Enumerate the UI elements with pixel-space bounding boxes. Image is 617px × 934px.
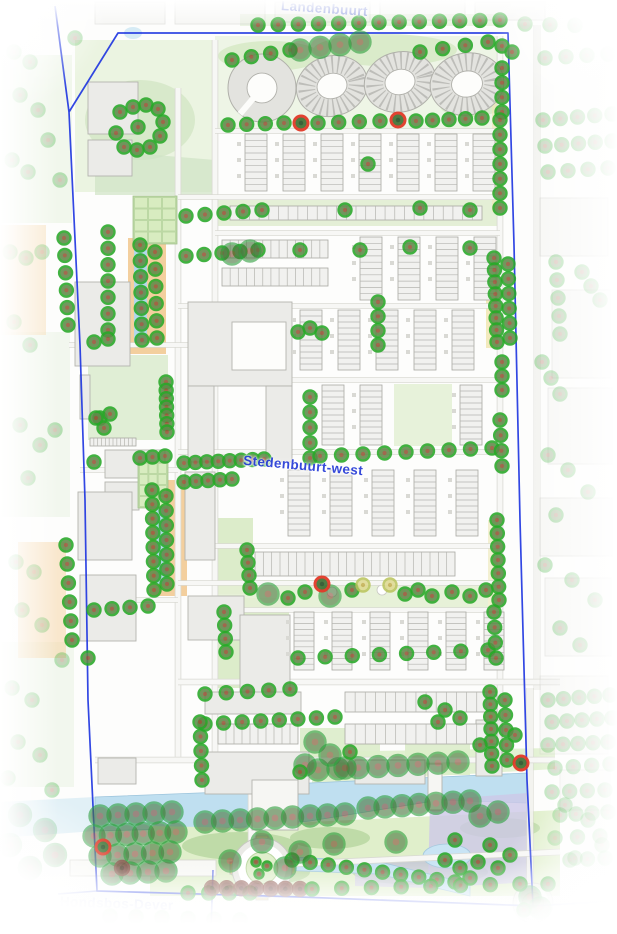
tree-marker[interactable] (494, 114, 507, 127)
tree-marker[interactable] (554, 328, 567, 341)
tree-marker[interactable] (310, 712, 323, 725)
tree-marker[interactable] (550, 509, 563, 522)
tree-marker[interactable] (544, 18, 557, 31)
tree-marker[interactable] (502, 287, 515, 300)
tree-marker[interactable] (492, 554, 505, 567)
tree-marker[interactable] (304, 391, 317, 404)
tree-marker[interactable] (324, 834, 345, 855)
tree-marker[interactable] (581, 853, 594, 866)
tree-marker[interactable] (591, 713, 604, 726)
tree-marker[interactable] (332, 17, 345, 30)
tree-marker[interactable] (552, 292, 565, 305)
tree-marker[interactable] (499, 709, 512, 722)
tree-marker[interactable] (49, 424, 62, 437)
tree-marker[interactable] (136, 334, 149, 347)
tree-marker[interactable] (275, 858, 296, 879)
tree-marker[interactable] (182, 912, 195, 925)
tree-marker[interactable] (28, 566, 41, 579)
tree-marker[interactable] (572, 737, 585, 750)
tree-marker[interactable] (234, 881, 248, 895)
tree-marker[interactable] (344, 746, 357, 759)
tree-marker[interactable] (504, 332, 517, 345)
tree-marker[interactable] (492, 580, 505, 593)
tree-marker[interactable] (589, 136, 602, 149)
tree-marker[interactable] (373, 16, 386, 29)
tree-marker[interactable] (208, 913, 221, 926)
tree-marker[interactable] (310, 37, 331, 58)
tree-marker[interactable] (26, 694, 39, 707)
tree-marker[interactable] (485, 723, 498, 736)
tree-marker-selected[interactable] (96, 840, 110, 854)
tree-marker[interactable] (149, 246, 162, 259)
tree-marker[interactable] (195, 745, 208, 758)
tree-marker[interactable] (503, 317, 516, 330)
tree-marker[interactable] (454, 712, 467, 725)
tree-marker[interactable] (152, 103, 165, 116)
tree-marker[interactable] (386, 832, 407, 853)
tree-marker[interactable] (34, 749, 47, 762)
tree-marker[interactable] (572, 137, 585, 150)
tree-marker[interactable] (24, 339, 37, 352)
tree-marker[interactable] (604, 689, 617, 702)
tree-marker[interactable] (234, 914, 247, 927)
tree-marker[interactable] (539, 140, 552, 153)
tree-marker[interactable] (503, 302, 516, 315)
tree-marker[interactable] (146, 484, 159, 497)
tree-marker[interactable] (151, 332, 164, 345)
tree-marker[interactable] (494, 158, 507, 171)
tree-marker[interactable] (589, 594, 602, 607)
tree-marker[interactable] (606, 712, 617, 725)
tree-marker[interactable] (294, 244, 307, 257)
tree-marker[interactable] (421, 445, 434, 458)
tree-marker[interactable] (408, 754, 429, 775)
tree-marker[interactable] (160, 534, 173, 547)
tree-marker[interactable] (484, 698, 497, 711)
tree-marker[interactable] (264, 882, 278, 896)
tree-marker[interactable] (306, 883, 319, 896)
tree-marker[interactable] (542, 449, 555, 462)
tree-marker[interactable] (574, 639, 587, 652)
tree-marker[interactable] (567, 760, 580, 773)
tree-marker[interactable] (242, 556, 255, 569)
tree-marker[interactable] (485, 747, 498, 760)
tree-marker[interactable] (588, 690, 601, 703)
tree-marker[interactable] (454, 645, 467, 658)
tree-marker[interactable] (576, 714, 589, 727)
tree-marker[interactable] (243, 569, 256, 582)
tree-marker[interactable] (542, 166, 555, 179)
tree-marker[interactable] (494, 143, 507, 156)
tree-marker[interactable] (357, 448, 370, 461)
tree-marker[interactable] (506, 46, 519, 59)
tree-marker[interactable] (102, 242, 115, 255)
tree-marker[interactable] (553, 310, 566, 323)
tree-marker[interactable] (459, 39, 472, 52)
tree-marker[interactable] (588, 109, 601, 122)
tree-marker[interactable] (606, 108, 617, 121)
tree-marker[interactable] (602, 736, 615, 749)
tree-marker[interactable] (376, 866, 389, 879)
tree-marker[interactable] (106, 602, 119, 615)
tree-marker[interactable] (104, 408, 117, 421)
tree-marker[interactable] (102, 226, 115, 239)
tree-marker[interactable] (44, 844, 66, 866)
tree-marker[interactable] (495, 444, 508, 457)
tree-marker[interactable] (542, 878, 555, 891)
tree-marker[interactable] (482, 36, 495, 49)
tree-marker[interactable] (484, 878, 497, 891)
tree-marker[interactable] (322, 858, 335, 871)
tree-marker[interactable] (156, 911, 169, 924)
tree-marker[interactable] (340, 861, 353, 874)
tree-marker[interactable] (539, 52, 552, 65)
tree-marker[interactable] (249, 882, 263, 896)
tree-marker[interactable] (365, 881, 378, 894)
tree-marker[interactable] (474, 739, 487, 752)
tree-marker[interactable] (304, 406, 317, 419)
tree-marker[interactable] (504, 849, 517, 862)
tree-marker[interactable] (569, 852, 582, 865)
tree-marker[interactable] (428, 753, 449, 774)
tree-marker[interactable] (61, 558, 74, 571)
tree-marker[interactable] (542, 694, 555, 707)
tree-marker[interactable] (156, 861, 177, 882)
tree-marker[interactable] (501, 754, 514, 767)
tree-marker[interactable] (237, 205, 250, 218)
tree-marker[interactable] (496, 356, 509, 369)
tree-marker[interactable] (16, 604, 29, 617)
tree-marker[interactable] (58, 249, 71, 262)
tree-marker[interactable] (372, 296, 385, 309)
tree-marker[interactable] (272, 18, 285, 31)
tree-marker[interactable] (404, 241, 417, 254)
tree-marker[interactable] (160, 519, 173, 532)
tree-marker[interactable] (299, 586, 312, 599)
tree-marker[interactable] (329, 711, 342, 724)
tree-marker[interactable] (602, 48, 615, 61)
tree-marker[interactable] (443, 444, 456, 457)
tree-marker[interactable] (569, 19, 582, 32)
tree-marker[interactable] (419, 696, 432, 709)
tree-marker[interactable] (88, 336, 101, 349)
tree-marker[interactable] (502, 258, 515, 271)
tree-marker[interactable] (488, 802, 509, 823)
tree-marker[interactable] (255, 870, 264, 879)
tree-marker[interactable] (372, 339, 385, 352)
tree-marker[interactable] (561, 715, 574, 728)
tree-marker[interactable] (414, 202, 427, 215)
tree-marker[interactable] (499, 694, 512, 707)
tree-marker[interactable] (220, 851, 241, 872)
tree-marker[interactable] (147, 569, 160, 582)
tree-marker[interactable] (66, 634, 79, 647)
tree-marker[interactable] (354, 244, 367, 257)
tree-marker[interactable] (519, 18, 532, 31)
tree-marker-selected[interactable] (391, 113, 405, 127)
tree-marker[interactable] (581, 784, 594, 797)
tree-marker[interactable] (496, 76, 509, 89)
tree-marker[interactable] (594, 294, 607, 307)
tree-marker[interactable] (573, 691, 586, 704)
tree-marker[interactable] (464, 590, 477, 603)
tree-marker[interactable] (273, 714, 286, 727)
tree-marker[interactable] (554, 112, 567, 125)
tree-marker[interactable] (545, 372, 558, 385)
tree-marker[interactable] (144, 141, 157, 154)
tree-marker[interactable] (384, 579, 397, 592)
tree-marker[interactable] (530, 898, 551, 919)
tree-marker[interactable] (424, 880, 437, 893)
tree-marker[interactable] (161, 578, 174, 591)
tree-marker[interactable] (294, 766, 307, 779)
tree-marker[interactable] (199, 688, 212, 701)
tree-marker[interactable] (146, 498, 159, 511)
tree-marker[interactable] (180, 250, 193, 263)
tree-marker[interactable] (12, 736, 25, 749)
tree-marker[interactable] (132, 121, 145, 134)
tree-marker[interactable] (150, 314, 163, 327)
tree-marker[interactable] (182, 887, 195, 900)
tree-marker[interactable] (149, 263, 162, 276)
tree-marker[interactable] (264, 47, 277, 60)
tree-marker[interactable] (102, 258, 115, 271)
tree-marker[interactable] (335, 882, 348, 895)
tree-marker[interactable] (446, 586, 459, 599)
tree-marker[interactable] (426, 590, 439, 603)
tree-marker[interactable] (496, 384, 509, 397)
tree-marker[interactable] (582, 486, 595, 499)
tree-marker[interactable] (464, 872, 477, 885)
tree-marker[interactable] (480, 584, 493, 597)
tree-marker[interactable] (304, 421, 317, 434)
tree-marker[interactable] (494, 14, 507, 27)
tree-marker[interactable] (36, 619, 49, 632)
tree-marker[interactable] (464, 204, 477, 217)
tree-marker[interactable] (587, 736, 600, 749)
tree-marker[interactable] (58, 232, 71, 245)
tree-marker[interactable] (585, 280, 598, 293)
tree-marker[interactable] (358, 863, 371, 876)
tree-marker[interactable] (135, 318, 148, 331)
tree-marker[interactable] (6, 682, 19, 695)
tree-marker[interactable] (9, 804, 31, 826)
tree-marker[interactable] (562, 164, 575, 177)
tree-marker[interactable] (252, 832, 273, 853)
tree-marker[interactable] (492, 862, 505, 875)
tree-marker[interactable] (439, 704, 452, 717)
tree-marker[interactable] (448, 752, 469, 773)
tree-marker[interactable] (241, 685, 254, 698)
tree-marker[interactable] (412, 871, 425, 884)
tree-marker[interactable] (69, 32, 82, 45)
tree-marker[interactable] (491, 540, 504, 553)
tree-marker[interactable] (134, 239, 147, 252)
tree-marker[interactable] (395, 880, 408, 893)
tree-marker[interactable] (335, 804, 356, 825)
tree-marker[interactable] (252, 19, 265, 32)
tree-marker[interactable] (304, 436, 317, 449)
tree-marker[interactable] (240, 241, 261, 262)
tree-marker[interactable] (393, 16, 406, 29)
tree-marker[interactable] (484, 839, 497, 852)
tree-marker[interactable] (554, 388, 567, 401)
tree-marker[interactable] (135, 302, 148, 315)
tree-marker[interactable] (42, 134, 55, 147)
tree-marker[interactable] (34, 439, 47, 452)
tree-marker[interactable] (134, 254, 147, 267)
tree-marker[interactable] (292, 652, 305, 665)
tree-marker[interactable] (582, 163, 595, 176)
tree-marker-selected[interactable] (315, 577, 329, 591)
tree-marker[interactable] (130, 910, 143, 923)
tree-marker[interactable] (494, 202, 507, 215)
tree-marker[interactable] (236, 716, 249, 729)
tree-marker[interactable] (400, 647, 413, 660)
tree-marker[interactable] (604, 758, 617, 771)
tree-marker[interactable] (374, 115, 387, 128)
tree-marker[interactable] (19, 857, 41, 879)
tree-marker[interactable] (316, 327, 329, 340)
tree-marker[interactable] (496, 91, 509, 104)
tree-marker[interactable] (226, 54, 239, 67)
tree-marker[interactable] (146, 451, 159, 464)
tree-marker[interactable] (14, 419, 27, 432)
tree-marker[interactable] (22, 472, 35, 485)
tree-marker[interactable] (536, 356, 549, 369)
tree-marker-selected[interactable] (514, 756, 528, 770)
tree-marker[interactable] (549, 762, 562, 775)
tree-marker[interactable] (594, 20, 607, 33)
tree-marker[interactable] (131, 144, 144, 157)
tree-marker[interactable] (602, 806, 615, 819)
tree-marker[interactable] (150, 297, 163, 310)
tree-marker[interactable] (220, 686, 233, 699)
tree-marker[interactable] (258, 584, 279, 605)
tree-marker[interactable] (160, 842, 181, 863)
tree-marker[interactable] (56, 654, 69, 667)
tree-marker[interactable] (576, 266, 589, 279)
tree-marker[interactable] (114, 106, 127, 119)
tree-marker[interactable] (472, 856, 485, 869)
tree-marker[interactable] (102, 275, 115, 288)
tree-marker[interactable] (436, 42, 449, 55)
tree-marker[interactable] (372, 324, 385, 337)
tree-marker[interactable] (494, 429, 507, 442)
tree-marker[interactable] (449, 834, 462, 847)
tree-marker[interactable] (88, 456, 101, 469)
tree-marker[interactable] (518, 904, 531, 917)
tree-marker[interactable] (282, 592, 295, 605)
tree-marker[interactable] (218, 606, 231, 619)
tree-marker[interactable] (332, 116, 345, 129)
tree-marker[interactable] (388, 755, 409, 776)
tree-marker[interactable] (551, 274, 564, 287)
tree-marker[interactable] (142, 600, 155, 613)
tree-marker[interactable] (555, 138, 568, 151)
tree-marker[interactable] (59, 266, 72, 279)
tree-marker[interactable] (410, 115, 423, 128)
tree-marker[interactable] (180, 210, 193, 223)
tree-marker[interactable] (259, 117, 272, 130)
tree-marker[interactable] (426, 114, 439, 127)
tree-marker[interactable] (146, 526, 159, 539)
tree-marker[interactable] (217, 717, 230, 730)
tree-marker[interactable] (148, 584, 161, 597)
tree-marker[interactable] (357, 579, 370, 592)
tree-marker[interactable] (6, 154, 19, 167)
tree-marker[interactable] (54, 174, 67, 187)
tree-marker[interactable] (492, 567, 505, 580)
tree-marker[interactable] (427, 646, 440, 659)
tree-marker[interactable] (62, 319, 75, 332)
tree-marker[interactable] (494, 172, 507, 185)
tree-marker[interactable] (494, 414, 507, 427)
tree-marker[interactable] (115, 861, 129, 875)
tree-marker[interactable] (473, 14, 486, 27)
tree-marker[interactable] (102, 291, 115, 304)
tree-marker[interactable] (494, 187, 507, 200)
tree-marker[interactable] (602, 162, 615, 175)
tree-marker[interactable] (488, 606, 501, 619)
tree-marker[interactable] (566, 574, 579, 587)
tree-marker[interactable] (222, 119, 235, 132)
tree-marker[interactable] (24, 56, 37, 69)
tree-marker[interactable] (160, 563, 173, 576)
tree-marker[interactable] (256, 204, 269, 217)
tree-marker[interactable] (147, 541, 160, 554)
tree-marker[interactable] (160, 490, 173, 503)
tree-marker[interactable] (599, 852, 612, 865)
tree-marker-selected[interactable] (294, 116, 308, 130)
tree-marker[interactable] (245, 50, 258, 63)
tree-marker[interactable] (159, 450, 172, 463)
tree-marker[interactable] (563, 785, 576, 798)
tree-marker[interactable] (62, 577, 75, 590)
tree-marker[interactable] (372, 310, 385, 323)
tree-marker[interactable] (606, 135, 617, 148)
tree-marker[interactable] (464, 443, 477, 456)
tree-marker[interactable] (262, 684, 275, 697)
tree-marker[interactable] (196, 774, 209, 787)
tree-marker[interactable] (542, 739, 555, 752)
tree-marker[interactable] (219, 632, 232, 645)
tree-marker[interactable] (161, 426, 174, 439)
tree-marker[interactable] (154, 130, 167, 143)
tree-marker[interactable] (124, 601, 137, 614)
tree-marker[interactable] (194, 730, 207, 743)
tree-marker[interactable] (571, 111, 584, 124)
tree-marker[interactable] (195, 759, 208, 772)
tree-marker[interactable] (166, 822, 187, 843)
tree-marker[interactable] (554, 622, 567, 635)
tree-marker[interactable] (102, 307, 115, 320)
tree-marker[interactable] (490, 652, 503, 665)
tree-marker[interactable] (34, 819, 56, 841)
tree-marker[interactable] (252, 858, 261, 867)
tree-marker[interactable] (88, 604, 101, 617)
tree-marker[interactable] (488, 621, 501, 634)
tree-marker[interactable] (64, 615, 77, 628)
tree-marker[interactable] (8, 316, 21, 329)
tree-marker[interactable] (484, 686, 497, 699)
tree-marker[interactable] (2, 772, 15, 785)
tree-marker[interactable] (489, 636, 502, 649)
tree-marker[interactable] (22, 166, 35, 179)
tree-marker[interactable] (263, 862, 272, 871)
tree-marker[interactable] (241, 544, 254, 557)
tree-marker[interactable] (146, 512, 159, 525)
